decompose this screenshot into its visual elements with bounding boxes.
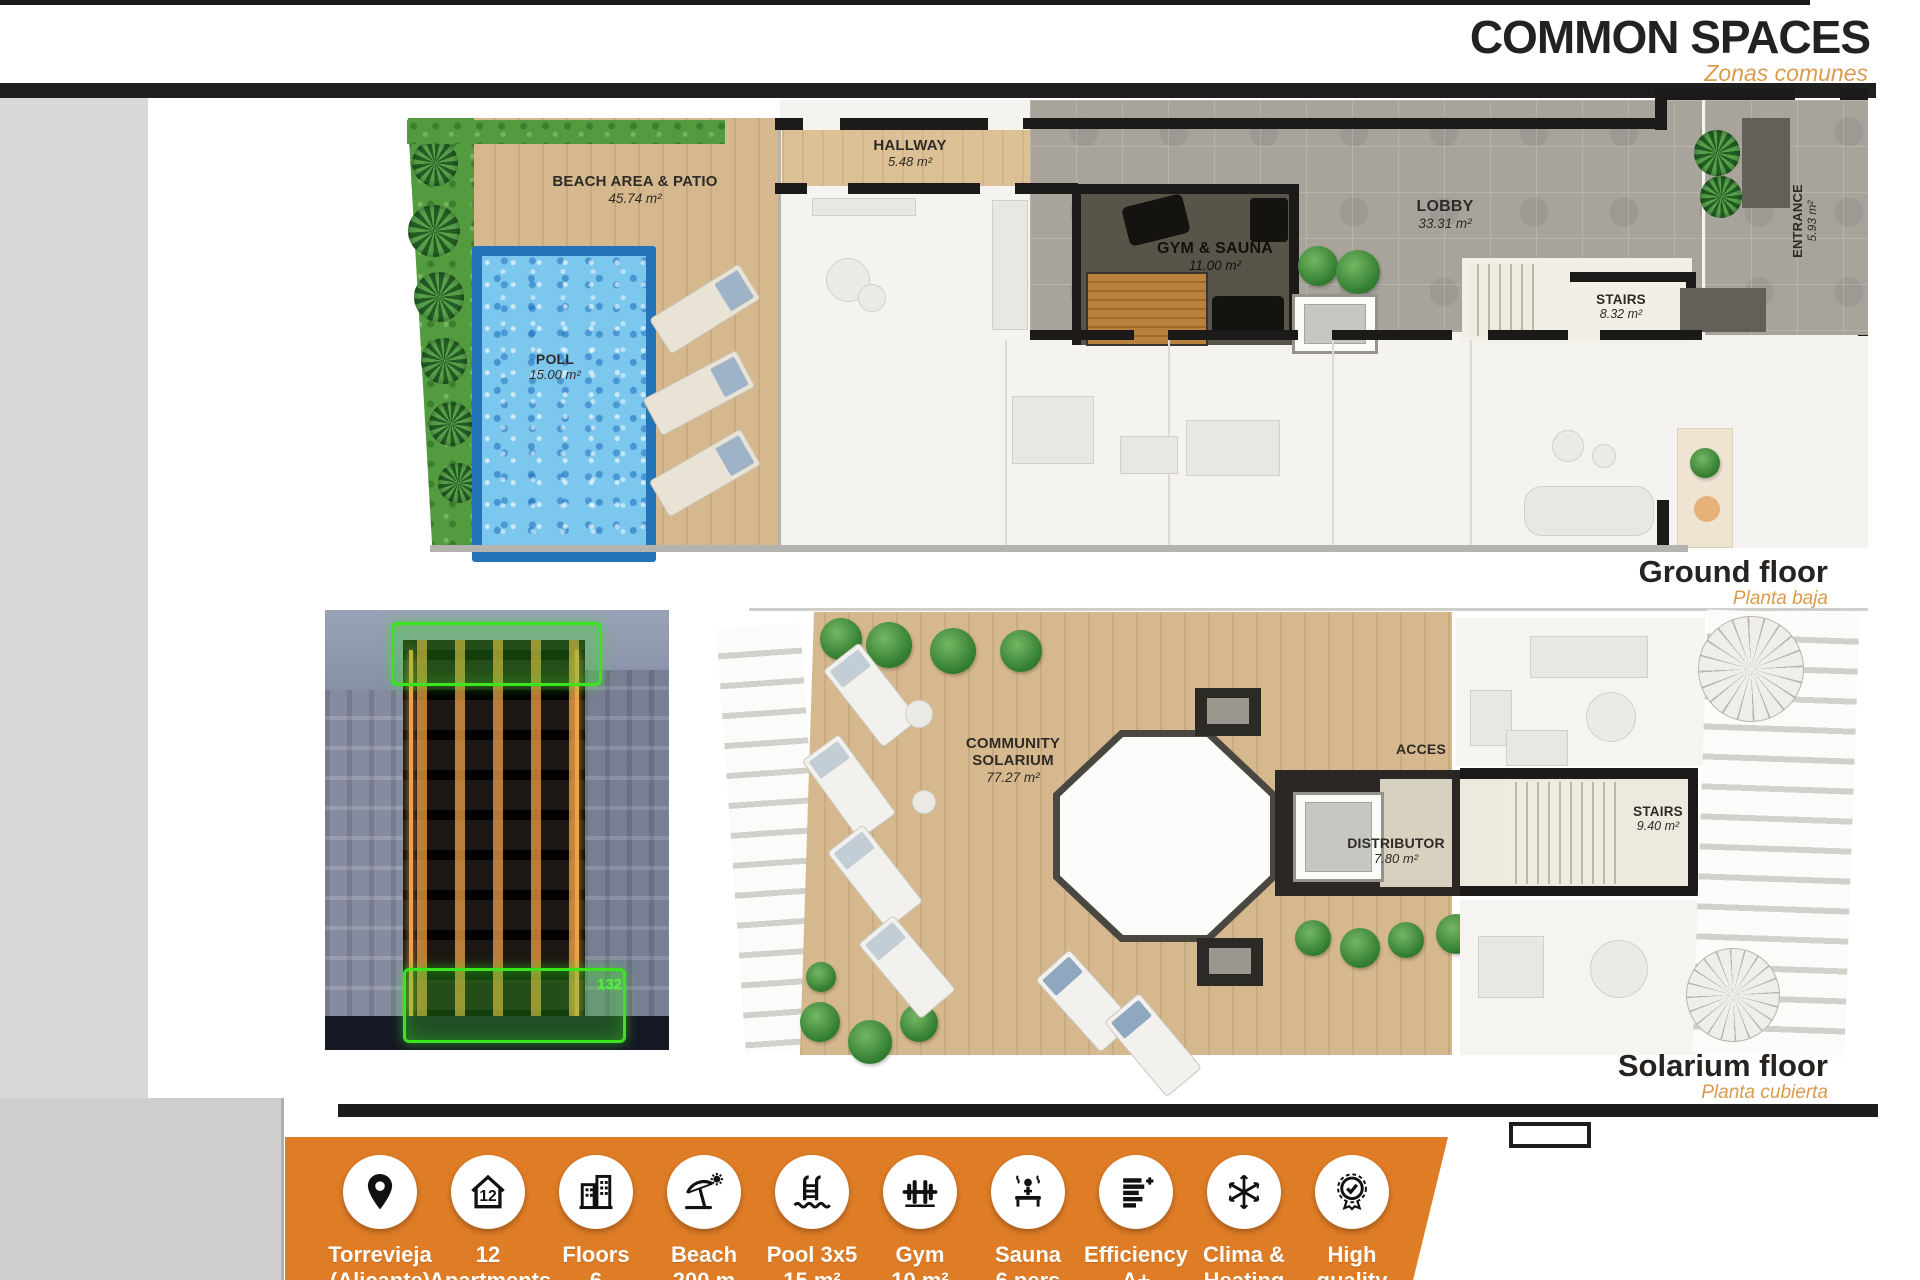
wall-segment	[1332, 330, 1452, 340]
feature-label: Sauna	[969, 1242, 1087, 1268]
octagon-inner	[1060, 737, 1270, 935]
energy-efficiency-icon	[1099, 1155, 1173, 1229]
feature-label: Efficiency	[1077, 1242, 1195, 1268]
side-table	[905, 700, 933, 728]
house-number-icon: 12	[451, 1155, 525, 1229]
roof-vent	[1197, 938, 1263, 986]
feature-location: Torrevieja(Alicante)	[321, 1155, 439, 1280]
feature-floors: Floors6	[537, 1155, 655, 1280]
spiral-stairs	[1686, 948, 1780, 1042]
pool-ladder-icon	[775, 1155, 849, 1229]
caption-main: Ground floor	[1200, 556, 1828, 589]
top-rule	[0, 0, 1810, 5]
room-label-distributor: DISTRIBUTOR 7.80 m²	[1330, 836, 1462, 866]
feature-sauna: Sauna6 pers	[969, 1155, 1087, 1280]
plant-icon	[800, 1002, 840, 1042]
furniture-bed	[1012, 396, 1094, 464]
palm-tree-icon	[412, 140, 458, 186]
solarium-top-line	[749, 608, 1868, 611]
plant-icon	[1000, 630, 1042, 672]
plant-icon	[1336, 250, 1380, 294]
feature-beach: Beach200 m	[645, 1155, 763, 1280]
room-label-entrance: ENTRANCE 5.93 m²	[1791, 161, 1841, 281]
wall-segment	[1015, 183, 1078, 194]
spiral-stairs	[1698, 616, 1804, 722]
palm-tree-icon	[429, 402, 473, 446]
access-corridor	[1380, 779, 1452, 887]
ground-hedge-strip	[407, 120, 725, 144]
wall-segment	[1030, 330, 1134, 340]
wall-segment	[1023, 118, 1660, 129]
wall-segment	[1168, 330, 1298, 340]
wall-mass	[1680, 288, 1766, 332]
furniture-tiles	[1478, 936, 1544, 998]
furniture-table	[1506, 730, 1568, 766]
furniture-sofa	[1524, 486, 1654, 536]
balcony-tiles	[1677, 428, 1733, 548]
caption-sub: Planta baja	[1200, 589, 1828, 610]
feature-label: Floors	[537, 1242, 655, 1268]
feature-gym: Gym10 m²	[861, 1155, 979, 1280]
feature-label: Beach	[645, 1242, 763, 1268]
feature-label2: 6	[537, 1268, 655, 1280]
wall-segment	[1072, 190, 1081, 345]
feature-label2: 6 pers	[969, 1268, 1087, 1280]
room-label-gym: GYM & SAUNA 11.00 m²	[1120, 240, 1310, 273]
highlight-groundfloor-box	[403, 968, 626, 1043]
climate-snowflake-icon	[1207, 1155, 1281, 1229]
wall-mass	[1742, 118, 1790, 208]
plant-icon	[1295, 920, 1331, 956]
furniture-table	[1590, 940, 1648, 998]
feature-label2: quality	[1293, 1268, 1411, 1280]
vent-grille	[1209, 948, 1251, 974]
building-photo: 132	[325, 610, 669, 1050]
plant-icon	[1340, 928, 1380, 968]
wall-segment	[1460, 768, 1698, 779]
beach-umbrella-icon	[667, 1155, 741, 1229]
gym-barbell-icon	[883, 1155, 957, 1229]
building-floors-icon	[559, 1155, 633, 1229]
feature-label2: A+	[1077, 1268, 1195, 1280]
feature-label: 12	[429, 1242, 547, 1268]
furniture-table	[858, 284, 886, 312]
highlight-solarium-box	[391, 622, 602, 686]
quality-medal-icon	[1315, 1155, 1389, 1229]
furniture-pouf	[1552, 430, 1584, 462]
lounger-pillow	[710, 356, 749, 397]
feature-label2: 15 m²	[753, 1268, 871, 1280]
feature-label: High	[1293, 1242, 1411, 1268]
plant-pot	[1694, 496, 1720, 522]
elevator	[1292, 294, 1378, 354]
wall-segment	[1460, 886, 1698, 896]
room-label-beach-area: BEACH AREA & PATIO 45.74 m²	[515, 174, 755, 206]
page-title: COMMON SPACES	[1470, 10, 1870, 64]
feature-label: Gym	[861, 1242, 979, 1268]
plant-icon	[930, 628, 976, 674]
faint-divider	[1332, 340, 1334, 545]
location-pin-icon	[343, 1155, 417, 1229]
plant-icon	[1298, 246, 1338, 286]
caption-sub: Planta cubierta	[1200, 1083, 1828, 1104]
furniture-sideboard	[812, 198, 916, 216]
feature-label2: 200 m	[645, 1268, 763, 1280]
feature-quality: Highquality	[1293, 1155, 1411, 1280]
plant-icon	[848, 1020, 892, 1064]
feature-label2: Apartments	[429, 1268, 547, 1280]
unit-number-badge: 132	[597, 976, 622, 993]
wall-segment	[775, 118, 803, 130]
gym-equipment	[1250, 198, 1288, 242]
furniture-bed	[1186, 420, 1280, 476]
wall-segment	[775, 183, 807, 194]
furniture-bath	[1120, 436, 1178, 474]
wall-segment	[1072, 184, 1298, 194]
feature-label: Clima &	[1185, 1242, 1303, 1268]
room-label-ground-stairs: STAIRS 8.32 m²	[1556, 292, 1686, 321]
palm-tree-icon	[421, 338, 467, 384]
wall-segment	[1570, 272, 1694, 282]
wall-segment	[1657, 500, 1669, 546]
furniture-kitchen	[992, 200, 1028, 330]
feature-label: Pool 3x5	[753, 1242, 871, 1268]
furniture-table	[1586, 692, 1636, 742]
wall-segment	[1488, 330, 1568, 340]
plant-icon	[1690, 448, 1720, 478]
ground-baseline	[430, 545, 1688, 552]
plant-icon	[1388, 922, 1424, 958]
side-table	[912, 790, 936, 814]
solarium-floor-caption: Solarium floor Planta cubierta	[1200, 1050, 1828, 1103]
room-label-solarium-stairs: STAIRS 9.40 m²	[1612, 804, 1704, 833]
plant-icon	[806, 962, 836, 992]
palm-tree-icon	[1700, 176, 1742, 218]
svg-text:12: 12	[479, 1188, 497, 1205]
vent-grille	[1207, 698, 1249, 724]
feature-label: Torrevieja	[321, 1242, 439, 1268]
plan-fragment	[1509, 1122, 1591, 1148]
roof-vent	[1195, 688, 1261, 736]
bottom-left-panel	[0, 1098, 284, 1280]
feature-efficiency: EfficiencyA+	[1077, 1155, 1195, 1280]
wall-segment	[1660, 88, 1795, 100]
room-label-pool: POLL 15.00 m²	[480, 352, 630, 382]
palm-tree-icon	[1694, 130, 1740, 176]
feature-apartments: 12 12Apartments	[429, 1155, 547, 1280]
room-label-lobby: LOBBY 33.31 m²	[1380, 198, 1510, 231]
faint-divider	[1470, 340, 1472, 545]
wall-segment	[1600, 330, 1702, 340]
bottom-rule	[338, 1104, 1878, 1117]
stairs-treads	[1468, 264, 1534, 336]
wall-segment	[848, 183, 980, 194]
furniture-sofa	[1530, 636, 1648, 678]
stairs-treads	[1506, 782, 1618, 884]
caption-main: Solarium floor	[1200, 1050, 1828, 1083]
feature-label2: 10 m²	[861, 1268, 979, 1280]
sauna-icon	[991, 1155, 1065, 1229]
palm-tree-icon	[414, 272, 464, 322]
feature-label2: Heating	[1185, 1268, 1303, 1280]
brochure-page: COMMON SPACES Zonas comunes POLL 15.00 m…	[0, 0, 1920, 1280]
furniture-pouf	[1592, 444, 1616, 468]
ground-floor-caption: Ground floor Planta baja	[1200, 556, 1828, 609]
room-label-hallway: HALLWAY 5.48 m²	[850, 138, 970, 169]
header-rule	[0, 83, 1876, 98]
feature-label2: (Alicante)	[321, 1268, 439, 1280]
room-label-acces: ACCES	[1386, 742, 1456, 758]
feature-pool: Pool 3x515 m²	[753, 1155, 871, 1280]
feature-climate: Clima &Heating	[1185, 1155, 1303, 1280]
faint-divider	[1005, 340, 1007, 545]
pool	[472, 246, 656, 562]
wall-segment	[840, 118, 988, 130]
palm-tree-icon	[408, 205, 460, 257]
